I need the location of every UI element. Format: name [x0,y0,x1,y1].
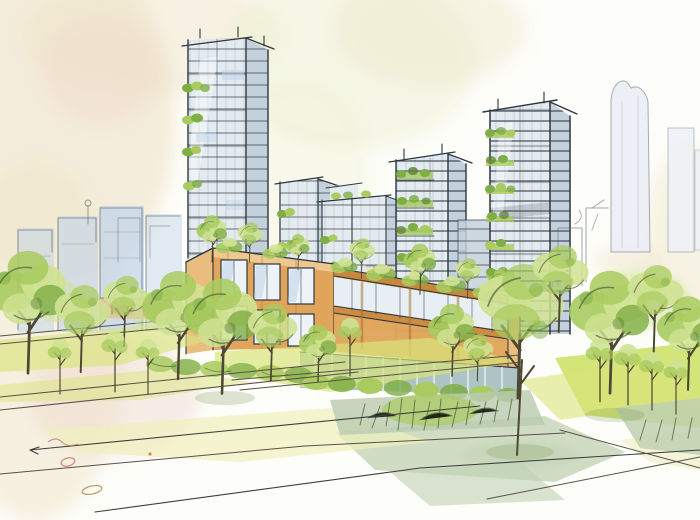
watercolor-city-sketch [0,0,700,520]
illustration-canvas [0,0,700,520]
tower-hero [182,27,274,258]
